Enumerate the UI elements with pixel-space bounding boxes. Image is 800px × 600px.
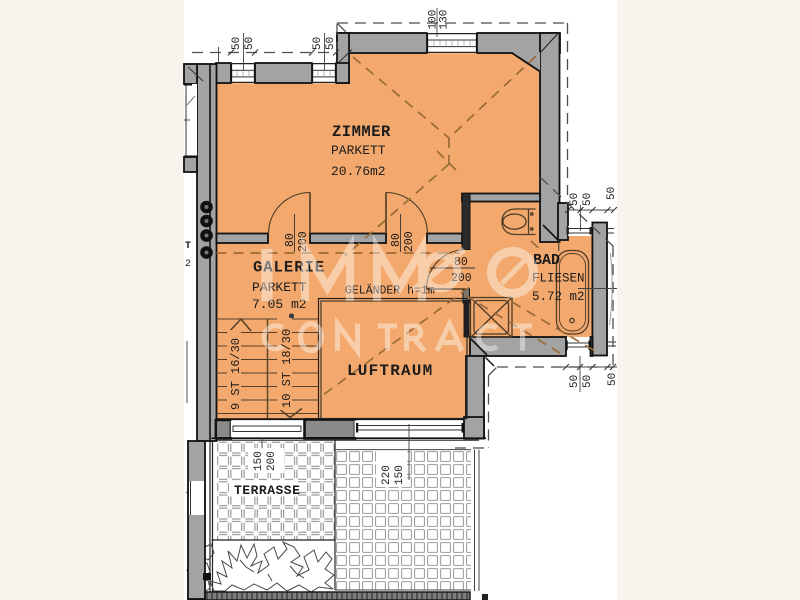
svg-text:80: 80	[390, 233, 403, 247]
svg-text:7.05 m2: 7.05 m2	[252, 297, 307, 312]
svg-text:5.72 m2: 5.72 m2	[532, 290, 585, 304]
svg-text:50: 50	[231, 37, 243, 50]
svg-text:80: 80	[284, 233, 297, 247]
svg-text:200: 200	[266, 451, 278, 471]
svg-text:50: 50	[606, 187, 618, 200]
svg-text:130: 130	[439, 10, 451, 30]
svg-text:50: 50	[312, 37, 324, 50]
svg-text:50: 50	[582, 193, 594, 206]
svg-text:20.76m2: 20.76m2	[331, 164, 386, 179]
svg-text:T: T	[185, 241, 191, 252]
svg-text:220: 220	[381, 465, 393, 485]
svg-text:PARKETT: PARKETT	[252, 280, 307, 295]
svg-text:200: 200	[403, 231, 416, 252]
svg-text:LUFTRAUM: LUFTRAUM	[347, 362, 433, 380]
svg-text:50: 50	[569, 193, 581, 206]
svg-text:2: 2	[185, 259, 191, 270]
svg-text:ZIMMER: ZIMMER	[332, 123, 391, 141]
svg-text:TERRASSE: TERRASSE	[234, 483, 300, 498]
svg-text:50: 50	[569, 375, 581, 388]
svg-text:50: 50	[582, 375, 594, 388]
svg-text:150: 150	[253, 451, 265, 471]
svg-text:50: 50	[244, 37, 256, 50]
svg-text:9 ST 16/30: 9 ST 16/30	[229, 338, 243, 410]
svg-text:10 ST 18/30: 10 ST 18/30	[280, 329, 294, 408]
svg-text:FLIESEN: FLIESEN	[532, 272, 585, 286]
svg-text:50: 50	[607, 373, 619, 386]
svg-text:50: 50	[325, 37, 337, 50]
svg-text:PARKETT: PARKETT	[331, 143, 386, 158]
svg-text:150: 150	[394, 465, 406, 485]
